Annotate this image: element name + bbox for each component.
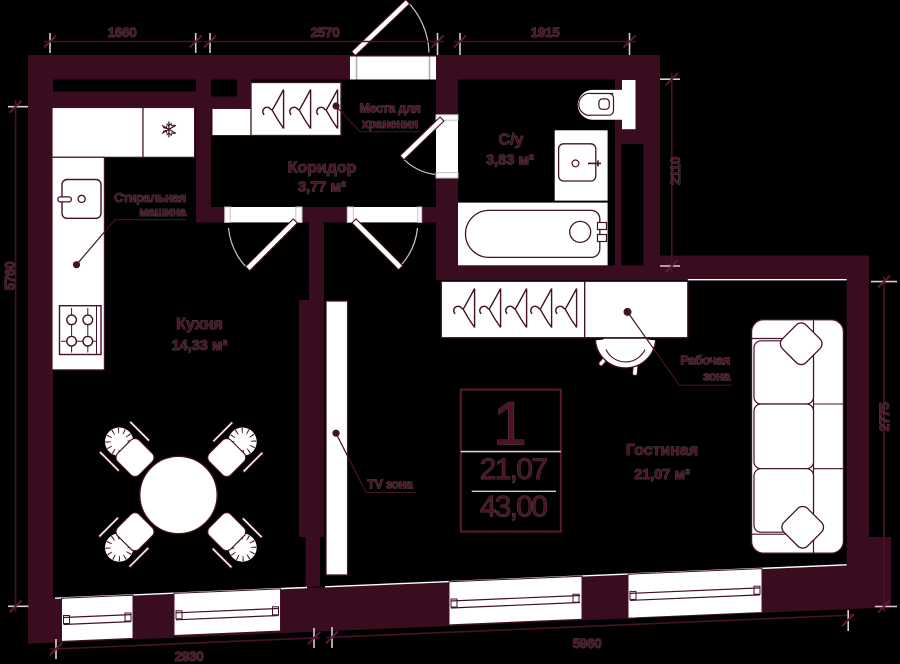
svg-text:хранения: хранения [362,117,418,131]
svg-text:21,07: 21,07 [480,453,548,486]
svg-text:1660: 1660 [108,25,137,40]
svg-text:1: 1 [493,390,527,458]
svg-text:43,00: 43,00 [480,491,548,524]
svg-text:Коридор: Коридор [288,160,357,177]
svg-text:Кухня: Кухня [176,316,223,333]
svg-text:14,33 м²: 14,33 м² [172,338,228,354]
svg-text:3,83 м²: 3,83 м² [486,153,534,169]
svg-text:5960: 5960 [573,636,602,651]
svg-text:зона: зона [703,370,731,384]
svg-text:2930: 2930 [175,649,204,664]
svg-text:21,07 м²: 21,07 м² [634,467,690,483]
svg-text:Места для: Места для [359,102,420,116]
svg-text:1915: 1915 [531,25,561,40]
svg-text:TV зона: TV зона [367,478,414,492]
svg-text:Рабочая: Рабочая [680,354,730,368]
svg-text:2570: 2570 [311,25,340,40]
svg-text:5760: 5760 [3,262,18,291]
svg-text:Стиральная: Стиральная [114,191,186,205]
svg-text:машина: машина [139,205,187,219]
svg-text:2775: 2775 [877,402,892,432]
svg-text:С/у: С/у [499,132,524,149]
svg-text:Гостиная: Гостиная [626,442,698,459]
svg-text:3,77 м²: 3,77 м² [298,180,346,196]
svg-text:2110: 2110 [668,157,683,185]
